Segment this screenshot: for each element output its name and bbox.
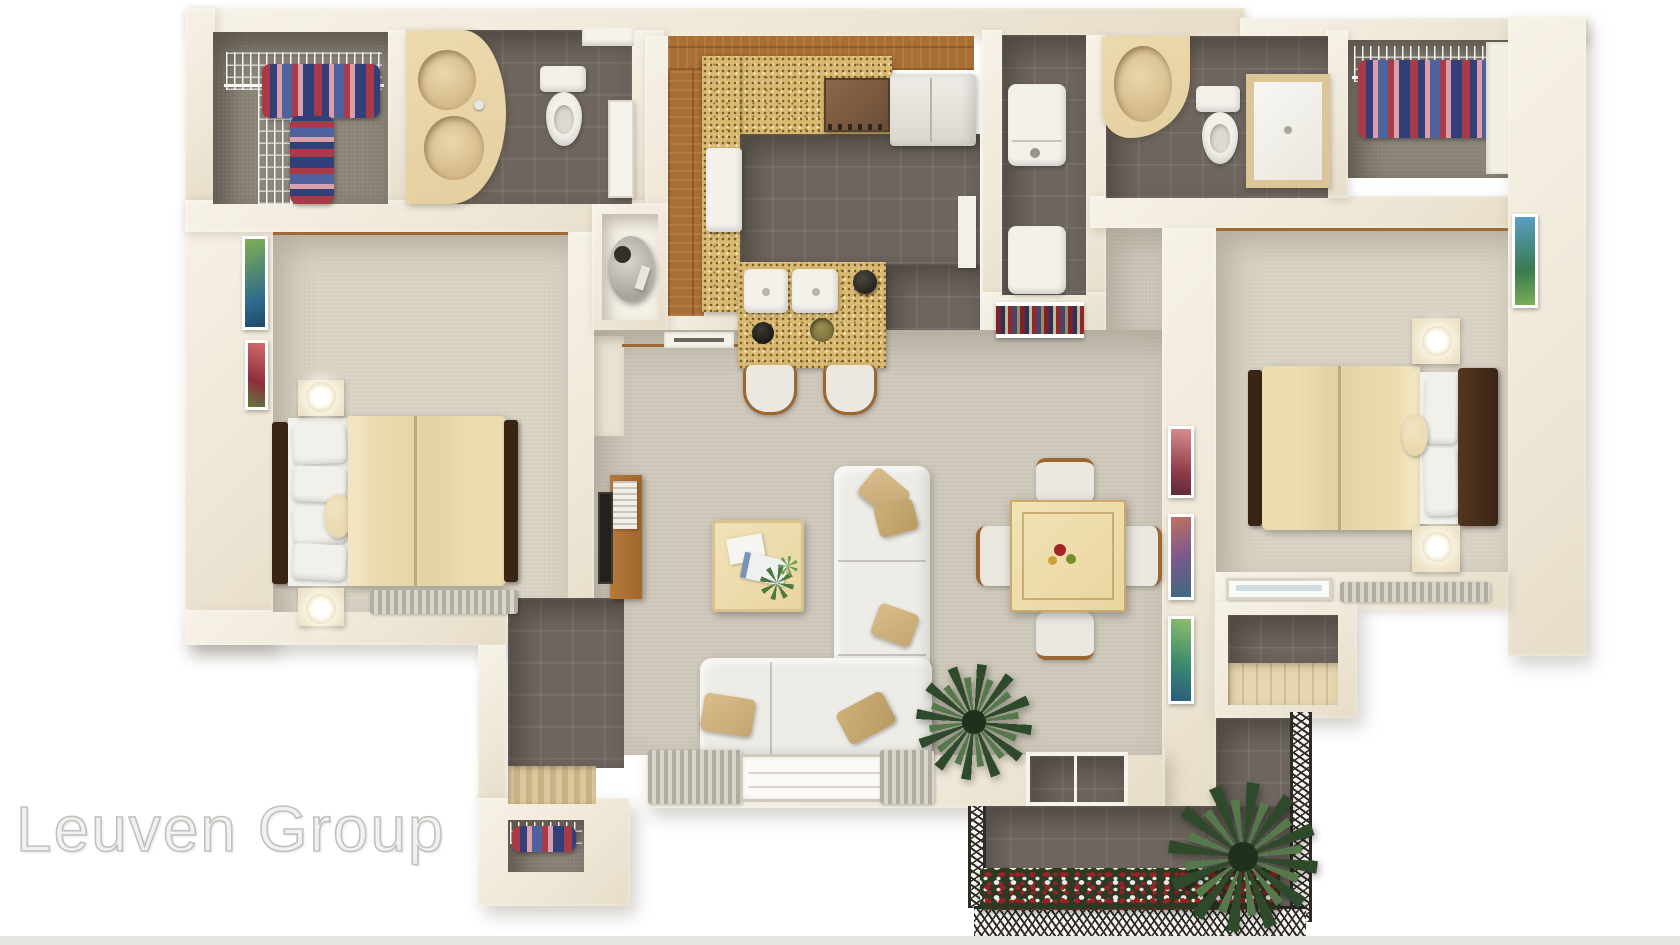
kitchen-faucet [853,270,877,294]
kitchen-tile-floor [740,134,980,264]
closet1-clothes-top [262,64,380,118]
bedroom1-trim [273,232,568,235]
bathroom1-shelf-niche [582,28,634,46]
living-window-mullion-1 [748,772,882,774]
bedroom1-window-blinds [370,590,518,614]
art-canvas [1171,619,1191,701]
kitchen-tile-floor-south [884,264,980,340]
kitchen-sink-drain-left [762,288,770,296]
bed2-pillow-2 [1423,447,1459,516]
bed1-headboard [272,422,288,584]
dining-carpet-north [1106,228,1162,330]
wall-closet1-bath1-divider [388,30,406,206]
living-curtain-right [880,750,934,804]
bed1-duvet [348,416,506,586]
hallway-vinyl [594,336,624,436]
living-curtain-left [648,750,742,804]
kitchen-wood-floor-left [668,36,704,316]
sofa-seam-1 [838,560,926,562]
washer-lid-line [1012,140,1062,142]
closet2-clothes [1358,60,1498,138]
wall-bath2-south [1090,196,1535,228]
tv [598,492,613,584]
dryer [1008,226,1066,294]
kitchen-pantry-door [958,196,976,268]
sofa-pillow-5 [699,692,756,738]
fruit-red [1054,544,1066,556]
sofa-seam-3 [770,662,772,754]
bed1-pillow-4 [291,543,347,582]
stock-pot [752,322,774,344]
wall-outer-left [185,8,215,208]
art-canvas [1515,217,1535,305]
entry-tile [508,598,624,768]
bed2-pillow-1 [1423,377,1459,444]
bed2-headboard [1458,368,1498,526]
bedroom2-window-glass [1236,585,1322,591]
living-window-mullion-2 [748,786,882,788]
kitchen-sink-drain-right [812,288,820,296]
closet1-clothes-side [290,116,334,204]
bedroom2-trim [1216,228,1508,231]
closet2-shelf-end [1486,42,1508,174]
bathroom1-faucet [474,100,484,110]
bookshelf [996,302,1084,338]
bathroom2-sink [1114,46,1172,122]
fruit-bowl-counter [810,318,834,342]
photo-bottom-edge [0,936,1680,945]
bed1-pillow-1 [291,423,347,466]
balcony-slider-door [1026,752,1128,806]
wall-bedroom1-east [566,232,594,642]
bed2-lamp-top [1422,326,1452,356]
wall-bedroom1-south [185,610,507,645]
washer-dial [1030,148,1040,158]
bed2-footboard [1248,370,1262,526]
bedroom1-wall-art-2 [245,340,268,410]
bed2-duvet [1262,366,1420,530]
bed1-lamp-top [306,382,336,412]
bathroom1-sink-1 [418,50,476,110]
bed1-duvet-fold [414,416,417,586]
cooktop-knobs [828,124,886,130]
console-books [613,481,637,529]
toilet1-tank [540,66,586,92]
refrigerator [890,74,976,146]
bed2-lamp-bottom [1422,532,1452,562]
refrigerator-divider [930,78,932,142]
bed1-footboard [504,420,518,582]
art-canvas [248,343,265,407]
bed2-duvet-fold [1338,366,1341,530]
floor-vent-slot [674,338,724,342]
dining-chair-right [1120,526,1162,586]
bathroom1-sink-2 [424,116,484,180]
living-window [740,754,890,802]
bedroom1-wall-art-1 [242,236,268,330]
dishwasher [706,148,742,232]
bed1-lamp-bottom [306,594,336,624]
toilet2-tank [1196,86,1240,112]
table-plant-small [778,556,798,576]
watermark: Leuven Group [16,792,446,866]
bar-stool-right [823,365,877,415]
bedroom2-wall-art [1512,214,1538,308]
dining-chair-bottom [1036,612,1094,660]
bar-stool-left [743,365,797,415]
water-heater-opening [614,246,631,263]
dining-wall-art-2 [1168,514,1194,600]
bathroom1-door [608,100,634,198]
fruit-green [1066,554,1076,564]
fruit-yellow [1048,556,1057,565]
balcony-plant [1168,782,1318,932]
patio-storage-shelf [1228,663,1338,705]
sofa-seam-2 [838,654,926,656]
patio-storage-floor [1228,615,1338,663]
wall-outer-east [1508,16,1586,656]
balcony-slider-mullion [1074,756,1077,802]
floorplan-render: Leuven Group [0,0,1680,945]
entry-mat [508,766,596,804]
dining-wall-art-3 [1168,616,1194,704]
art-canvas [1171,517,1191,597]
bed2-round-pillow [1402,414,1428,456]
art-canvas [245,239,265,327]
shower-drain [1284,126,1292,134]
entry-closet-clothes [512,826,576,852]
dining-wall-art-1 [1168,426,1194,498]
wall-entry-west [478,645,506,807]
art-canvas [1171,429,1191,495]
bedroom2-window-blinds [1340,582,1490,602]
dining-chair-top [1036,458,1094,504]
